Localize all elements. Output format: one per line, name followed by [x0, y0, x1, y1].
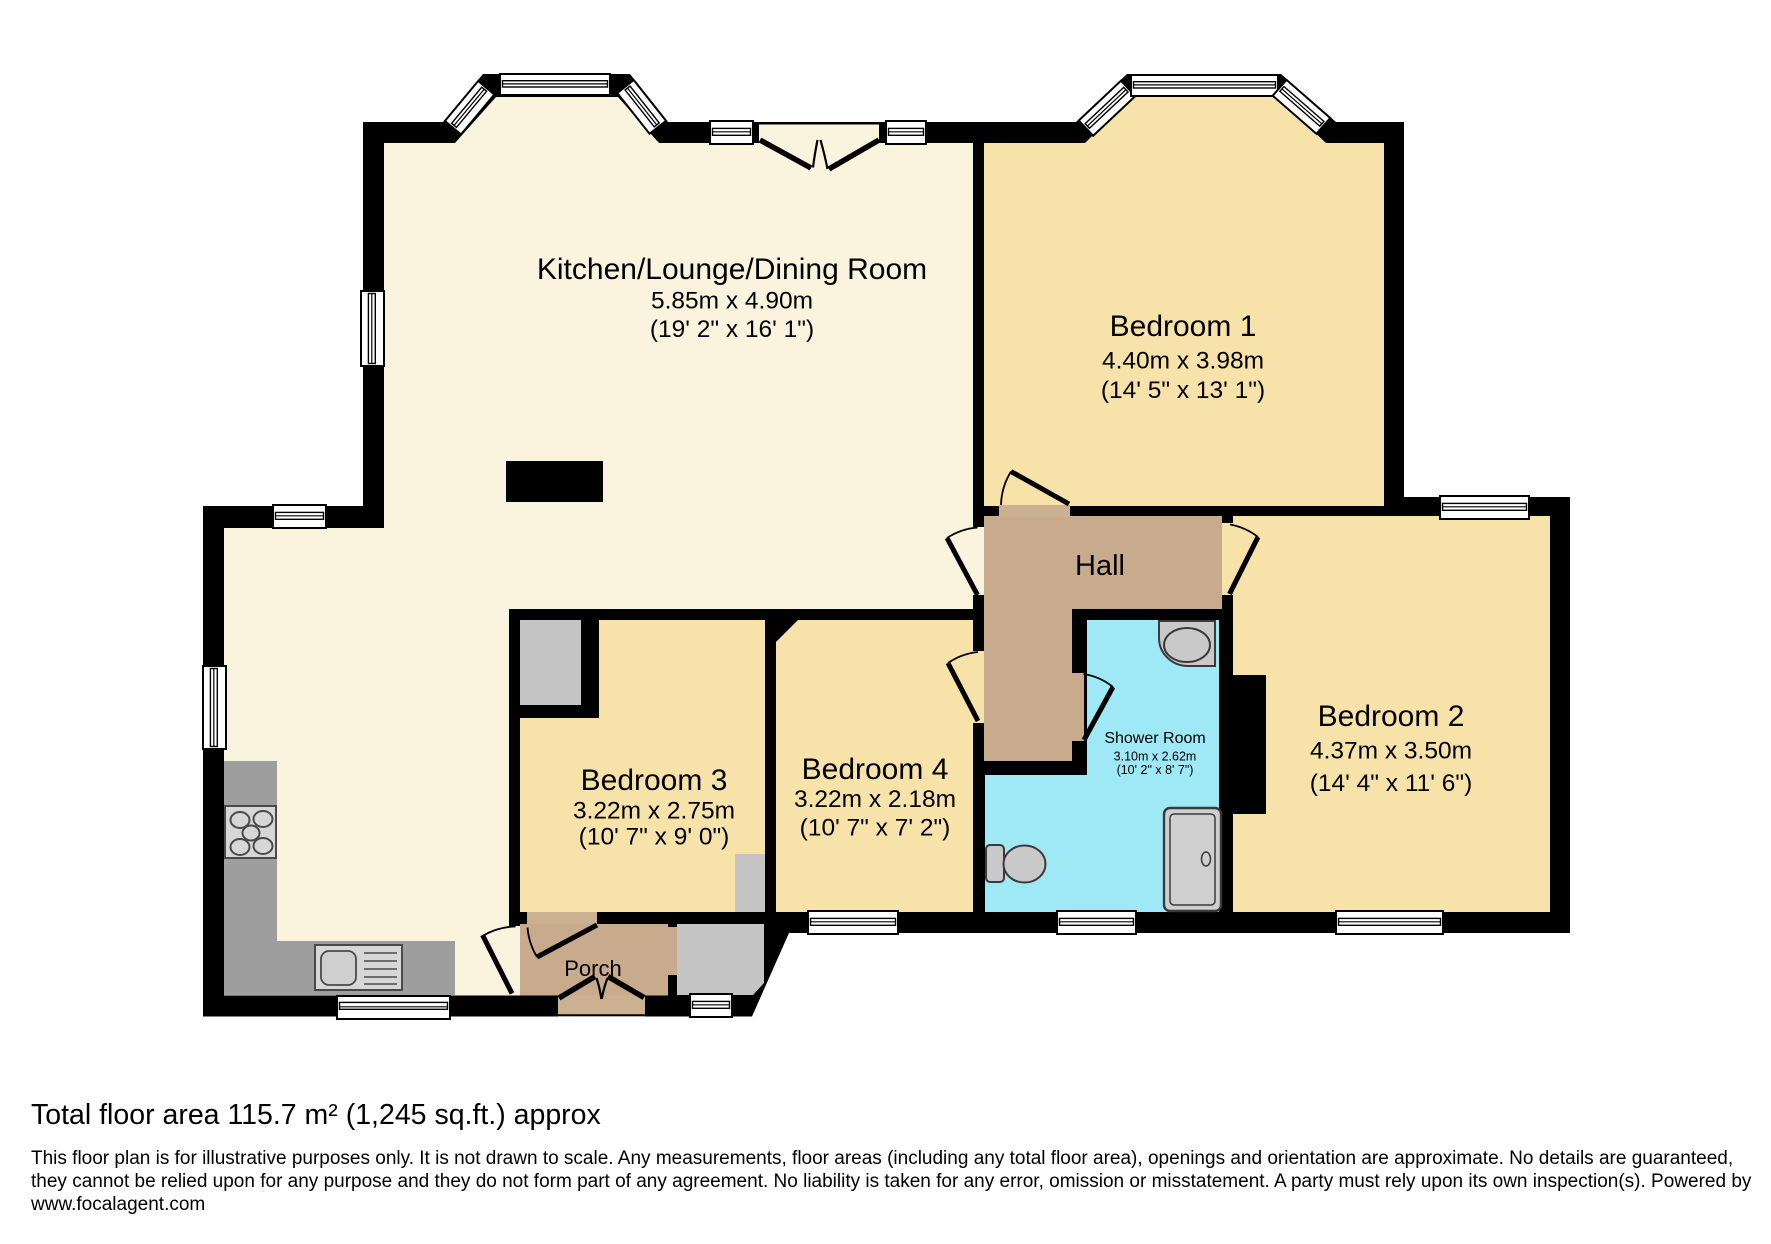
svg-text:Shower Room: Shower Room — [1104, 730, 1205, 747]
svg-text:(14' 4" x 11' 6"): (14' 4" x 11' 6") — [1310, 770, 1472, 797]
svg-text:5.85m x 4.90m: 5.85m x 4.90m — [651, 288, 813, 315]
svg-text:(19' 2" x 16' 1"): (19' 2" x 16' 1") — [650, 316, 814, 343]
svg-text:Kitchen/Lounge/Dining Room: Kitchen/Lounge/Dining Room — [537, 253, 927, 286]
svg-text:3.22m x 2.18m: 3.22m x 2.18m — [794, 786, 956, 813]
svg-text:Bedroom 3: Bedroom 3 — [581, 764, 728, 797]
svg-text:This floor plan is for illustr: This floor plan is for illustrative purp… — [31, 1148, 1733, 1169]
svg-text:Total floor area 115.7 m² (1,2: Total floor area 115.7 m² (1,245 sq.ft.)… — [31, 1099, 601, 1131]
svg-text:Hall: Hall — [1075, 550, 1125, 582]
svg-text:www.focalagent.com: www.focalagent.com — [30, 1194, 205, 1215]
svg-text:Bedroom 1: Bedroom 1 — [1110, 310, 1257, 343]
svg-text:4.37m x 3.50m: 4.37m x 3.50m — [1310, 738, 1472, 765]
svg-text:(10' 7" x 7' 2"): (10' 7" x 7' 2") — [800, 815, 951, 842]
svg-text:they cannot be relied upon for: they cannot be relied upon for any purpo… — [31, 1171, 1752, 1192]
svg-text:(10' 7" x 9' 0"): (10' 7" x 9' 0") — [579, 824, 730, 851]
svg-text:Porch: Porch — [564, 956, 621, 981]
svg-text:(10' 2" x 8' 7"): (10' 2" x 8' 7") — [1117, 763, 1194, 777]
svg-text:(14' 5" x 13' 1"): (14' 5" x 13' 1") — [1101, 377, 1265, 404]
svg-text:3.22m x 2.75m: 3.22m x 2.75m — [573, 798, 735, 825]
svg-text:3.10m x 2.62m: 3.10m x 2.62m — [1114, 750, 1197, 764]
svg-text:Bedroom 2: Bedroom 2 — [1318, 700, 1465, 733]
svg-text:4.40m x 3.98m: 4.40m x 3.98m — [1102, 348, 1264, 375]
svg-text:Bedroom 4: Bedroom 4 — [802, 753, 949, 786]
